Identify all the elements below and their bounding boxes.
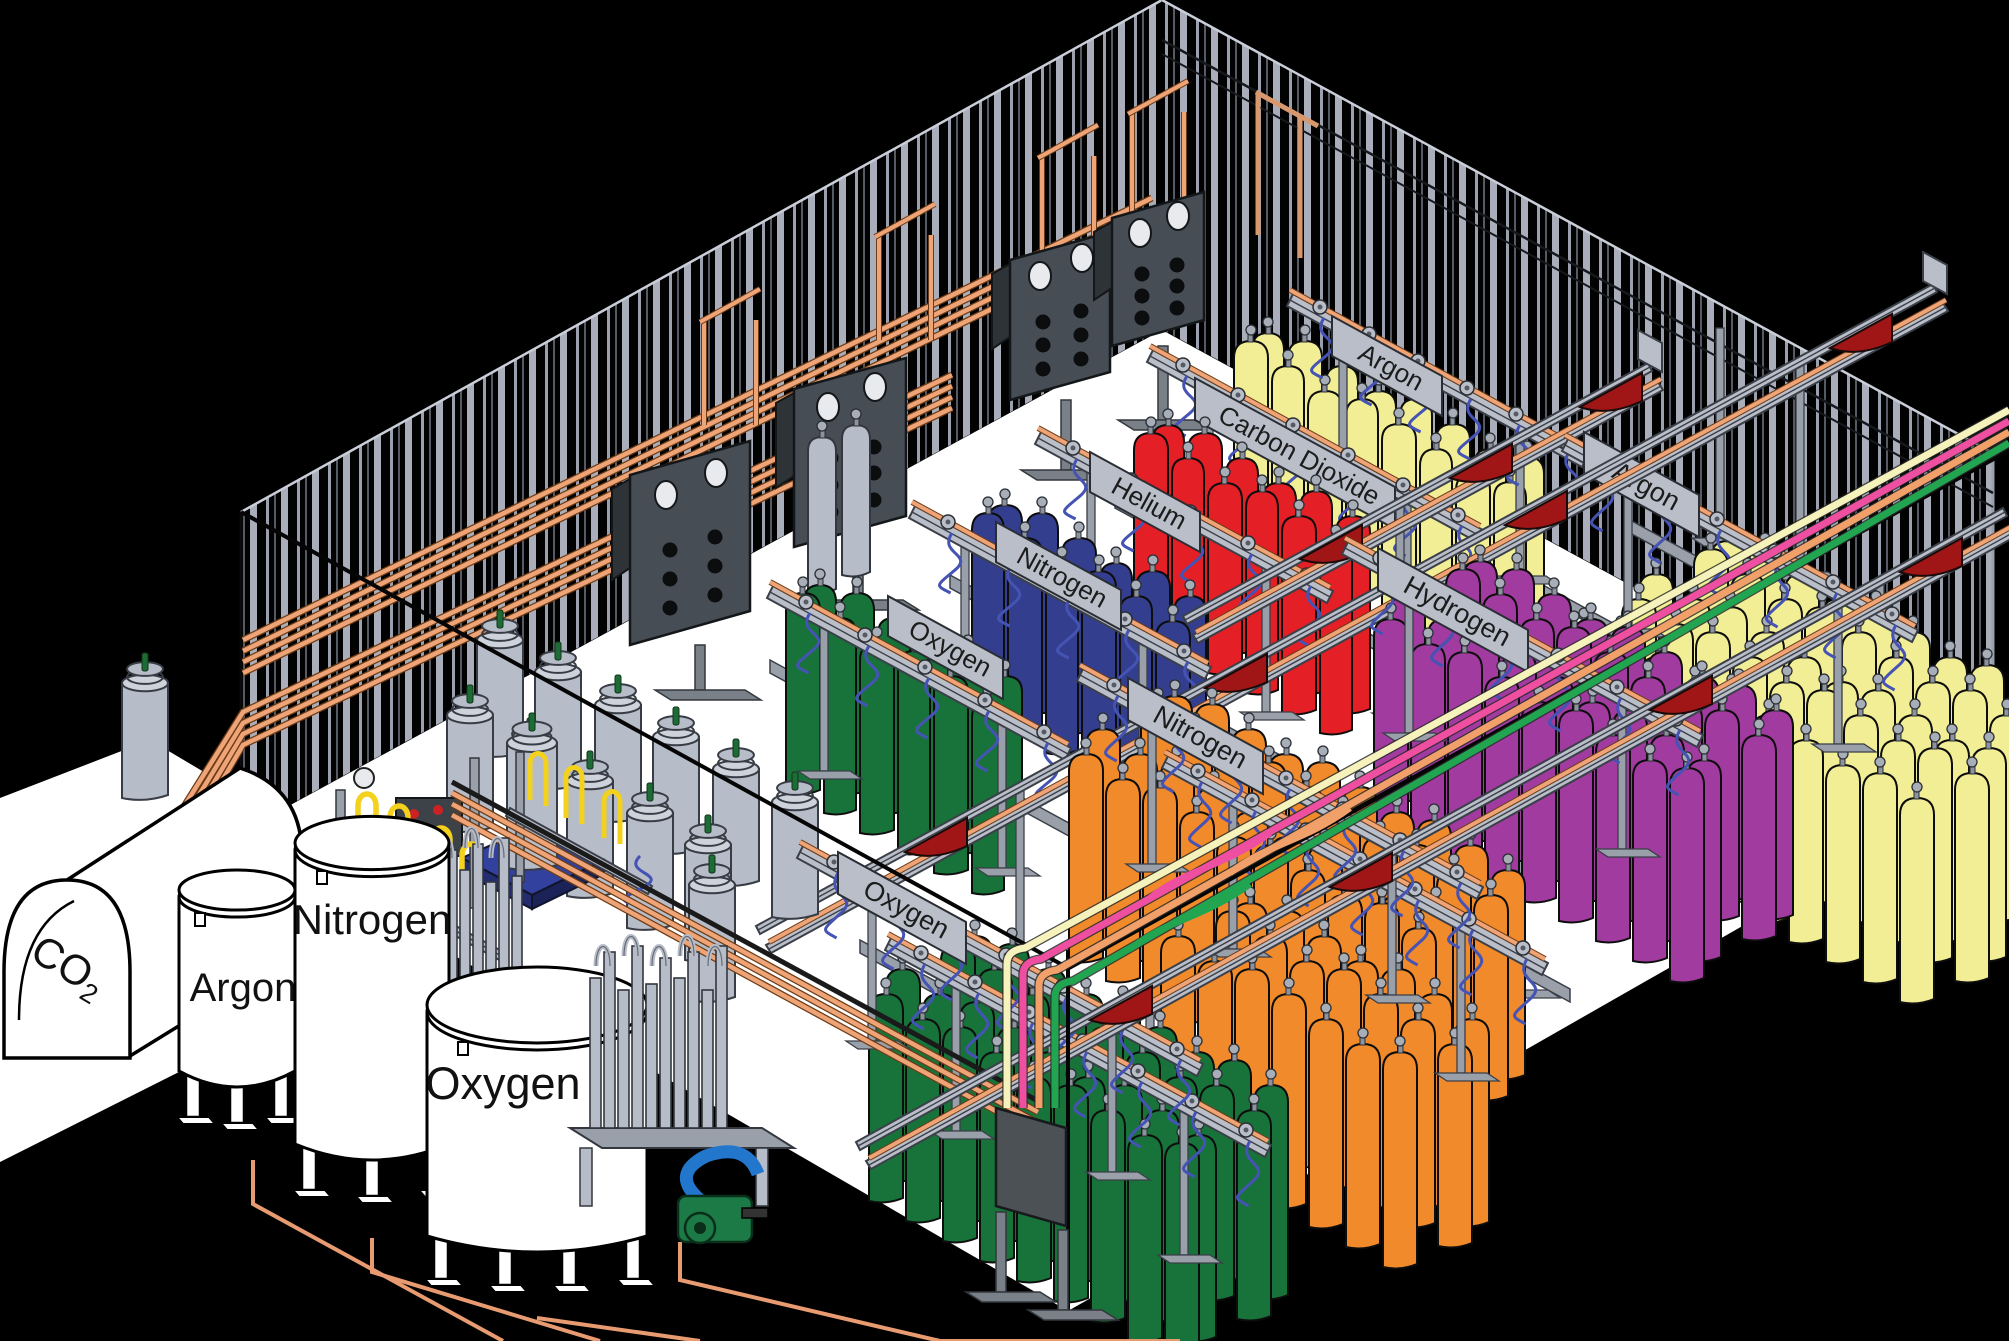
svg-text:Argon: Argon <box>190 966 297 1010</box>
svg-text:Nitrogen: Nitrogen <box>293 896 452 943</box>
svg-text:Oxygen: Oxygen <box>425 1058 580 1109</box>
